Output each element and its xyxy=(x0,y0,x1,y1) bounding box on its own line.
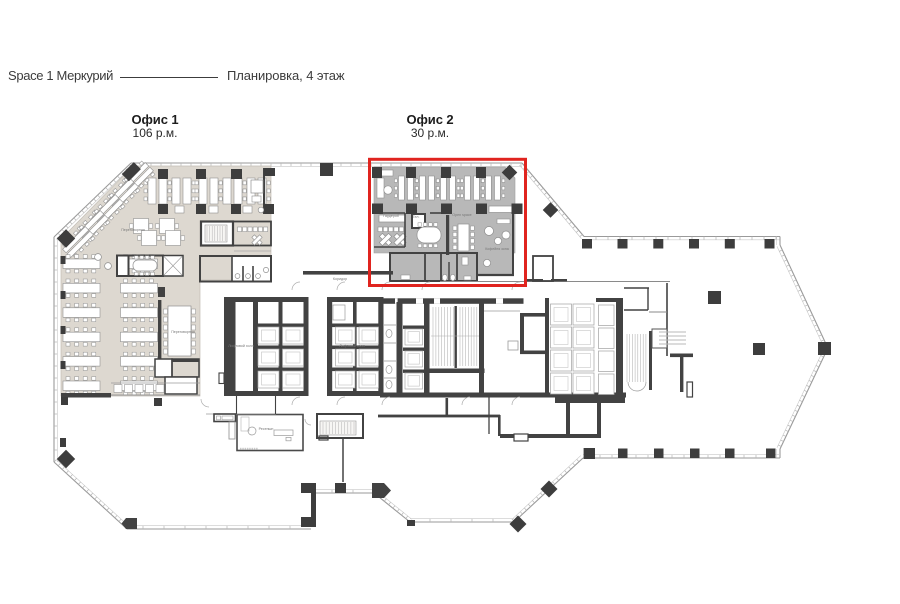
svg-text:Ресепшн: Ресепшн xyxy=(259,427,274,431)
svg-text:Open space: Open space xyxy=(452,213,471,217)
svg-text:Кофейня зона: Кофейня зона xyxy=(485,247,509,251)
svg-text:Коридор: Коридор xyxy=(333,277,347,281)
svg-text:Тел.: Тел. xyxy=(413,215,420,219)
svg-text:Лифтовой холл: Лифтовой холл xyxy=(339,344,365,348)
svg-text:Лифтовой холл: Лифтовой холл xyxy=(228,344,254,348)
svg-text:Гардероб: Гардероб xyxy=(383,214,399,218)
svg-text:Переговорная: Переговорная xyxy=(121,228,145,232)
svg-text:Переговорная: Переговорная xyxy=(171,330,195,334)
